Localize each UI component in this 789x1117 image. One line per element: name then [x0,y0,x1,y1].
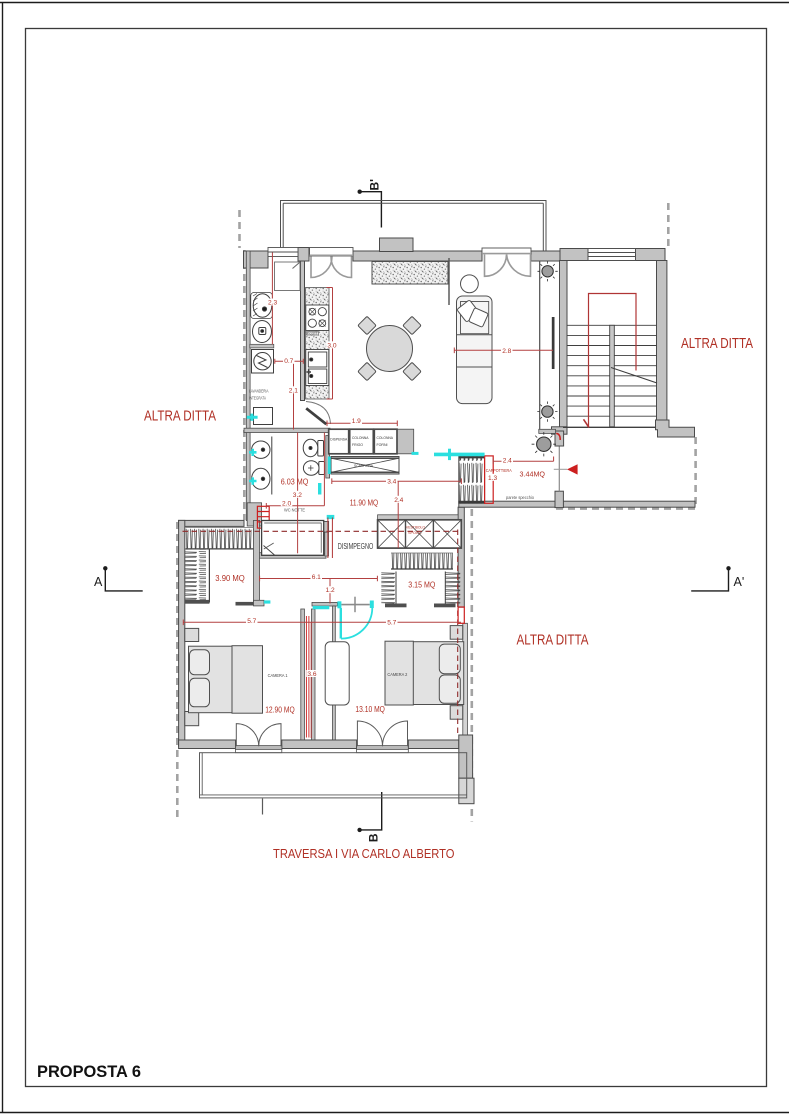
svg-text:TRAVERSA I VIA CARLO ALBERTO: TRAVERSA I VIA CARLO ALBERTO [273,846,455,861]
svg-text:B': B' [368,179,382,191]
svg-text:13.10 MQ: 13.10 MQ [355,704,385,714]
svg-text:2.3: 2.3 [268,300,277,307]
svg-text:COLONNA: COLONNA [352,435,369,440]
svg-text:2.1: 2.1 [289,387,298,394]
svg-text:6.03 MQ: 6.03 MQ [281,477,309,486]
svg-text:WC NOTTE: WC NOTTE [284,508,305,513]
svg-text:DISPENSA: DISPENSA [330,437,347,442]
svg-text:CAMERA 1: CAMERA 1 [268,673,288,678]
svg-text:A: A [94,575,103,589]
svg-text:B: B [367,833,381,842]
svg-text:CAPPOTTIERA: CAPPOTTIERA [486,468,512,473]
svg-text:ALTRA DITTA: ALTRA DITTA [681,336,753,352]
svg-text:3.4: 3.4 [387,478,396,485]
svg-text:11.90 MQ: 11.90 MQ [350,498,379,507]
svg-text:3.90 MQ: 3.90 MQ [215,574,245,583]
svg-text:A': A' [734,575,745,589]
svg-text:6.1: 6.1 [312,574,321,581]
svg-text:12.90 MQ: 12.90 MQ [265,705,295,715]
svg-text:1.2: 1.2 [326,587,335,594]
svg-text:1.3: 1.3 [488,475,497,482]
svg-text:FORNI: FORNI [377,442,388,447]
svg-text:CAMERA 2: CAMERA 2 [387,672,407,677]
svg-text:LAVANDERIA: LAVANDERIA [249,389,269,394]
svg-text:0.7: 0.7 [284,358,293,365]
svg-text:P.COTT: P.COTT [307,331,318,335]
svg-text:5.7: 5.7 [247,618,256,625]
svg-text:3.15 MQ: 3.15 MQ [408,581,435,590]
svg-text:INTEGRATA: INTEGRATA [249,396,266,401]
svg-text:SCARPIERA: SCARPIERA [354,463,373,468]
svg-text:FRIGO: FRIGO [352,442,363,447]
svg-text:3.2: 3.2 [293,492,302,499]
svg-text:1.9: 1.9 [352,418,361,425]
svg-text:SPOGL.: SPOGL. [408,530,422,535]
svg-text:2.4: 2.4 [503,457,512,464]
svg-text:5.7: 5.7 [387,619,396,626]
svg-text:PROPOSTA 6: PROPOSTA 6 [37,1063,141,1081]
svg-text:2.8: 2.8 [502,348,511,355]
svg-text:DISIMPEGNO: DISIMPEGNO [338,542,374,551]
svg-text:3.44MQ: 3.44MQ [520,469,546,478]
svg-text:2.4: 2.4 [394,497,403,504]
svg-text:VESTIBOLO: VESTIBOLO [406,525,425,530]
svg-text:2.0: 2.0 [282,500,291,507]
svg-text:ALTRA DITTA: ALTRA DITTA [517,632,589,648]
svg-text:ALTRA DITTA: ALTRA DITTA [144,409,216,425]
svg-text:parete specchio: parete specchio [506,495,535,500]
svg-text:3.0: 3.0 [327,342,336,349]
svg-text:COLONNA: COLONNA [377,435,394,440]
svg-text:3.6: 3.6 [307,671,316,678]
